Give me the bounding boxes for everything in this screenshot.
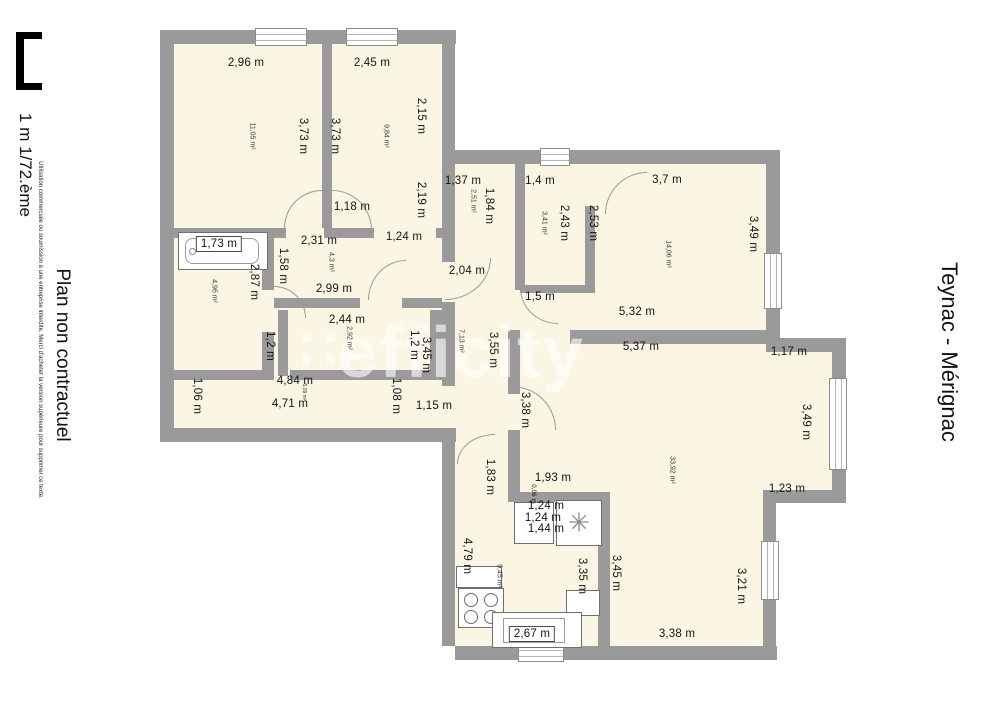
dimension-label: 3,49 m bbox=[747, 216, 759, 252]
window bbox=[761, 541, 779, 600]
window-pane-line bbox=[835, 379, 836, 469]
dimension-label: 2,04 m bbox=[449, 265, 485, 277]
wall bbox=[455, 646, 518, 660]
dimension-label: 3,49 m bbox=[800, 404, 812, 440]
dimension-label: 1,5 m bbox=[525, 291, 555, 303]
window-pane-line bbox=[767, 542, 768, 599]
window-pane-line bbox=[256, 34, 306, 35]
scale-bar-icon bbox=[16, 32, 24, 90]
dimension-label: 2,67 m bbox=[509, 626, 555, 642]
stove-burner bbox=[484, 593, 498, 607]
window-pane-line bbox=[519, 650, 563, 651]
dimension-label: 1,15 m bbox=[416, 400, 452, 412]
scale-bar-icon bbox=[16, 32, 42, 39]
dimension-label: 2,87 m bbox=[248, 264, 260, 300]
window bbox=[829, 378, 847, 470]
dimension-label: 1,93 m bbox=[535, 472, 571, 484]
window bbox=[255, 28, 307, 46]
wall bbox=[763, 503, 776, 543]
plan-title: Teynac - Mérignac bbox=[936, 262, 962, 442]
window-pane-line bbox=[776, 254, 777, 308]
dimension-label: 4,84 m bbox=[277, 375, 313, 387]
dimension-label: 1,23 m bbox=[769, 483, 805, 495]
window-pane-line bbox=[541, 160, 569, 161]
room-area-label: 9,84 m² bbox=[383, 124, 390, 148]
stove-burner bbox=[464, 610, 478, 624]
dimension-label: 1,73 m bbox=[196, 236, 242, 252]
plan-disclaimer: Plan non contractuel bbox=[51, 268, 73, 441]
dimension-label: 2,53 m bbox=[587, 205, 599, 241]
dimension-label: 1,2 m bbox=[264, 331, 276, 361]
wall bbox=[160, 428, 456, 442]
dimension-label: 3,73 m bbox=[329, 118, 341, 154]
room-area-label: 4,96 m² bbox=[211, 279, 218, 303]
room-area-label: 5,09 m² bbox=[301, 384, 307, 401]
wall bbox=[515, 164, 525, 290]
room-area-label: 7,13 m² bbox=[458, 329, 465, 353]
room-area-label: 4,3 m² bbox=[328, 252, 335, 272]
dimension-label: 3,21 m bbox=[735, 568, 747, 604]
dimension-label: 3,38 m bbox=[519, 392, 531, 428]
dimension-label: 1,17 m bbox=[771, 346, 807, 358]
dimension-label: 1,24 m bbox=[528, 500, 564, 512]
dimension-label: 1,84 m bbox=[483, 188, 495, 224]
room-area-label: 3,41 m² bbox=[541, 211, 548, 235]
room-area-label: 2,92 m² bbox=[346, 326, 353, 350]
dimension-label: 2,44 m bbox=[329, 314, 365, 326]
wall bbox=[763, 598, 776, 648]
dimension-label: 1,83 m bbox=[484, 459, 496, 495]
dimension-label: 5,32 m bbox=[619, 306, 655, 318]
dimension-label: 5,37 m bbox=[623, 341, 659, 353]
wall bbox=[174, 370, 274, 380]
dimension-label: 3,73 m bbox=[297, 118, 309, 154]
dimension-label: 1,4 m bbox=[525, 175, 555, 187]
dimension-label: 3,7 m bbox=[652, 174, 682, 186]
dimension-label: 1,37 m bbox=[445, 175, 481, 187]
freezer-icon: ✳ bbox=[568, 508, 590, 539]
wall bbox=[455, 150, 780, 164]
room-area-label: 33,92 m² bbox=[669, 456, 676, 484]
room-area-label: 2,51 m² bbox=[470, 189, 477, 213]
dimension-label: 2,15 m bbox=[415, 98, 427, 134]
dimension-label: 1,24 m bbox=[386, 231, 422, 243]
dimension-label: 3,55 m bbox=[487, 332, 499, 368]
room-area-label: 14,06 m² bbox=[665, 240, 672, 268]
wall bbox=[160, 30, 174, 442]
scale-bar-icon bbox=[16, 83, 42, 90]
wall bbox=[508, 430, 520, 492]
dimension-label: 3,38 m bbox=[659, 628, 695, 640]
window-pane-line bbox=[519, 656, 563, 657]
dimension-label: 2,99 m bbox=[316, 283, 352, 295]
wall bbox=[442, 30, 455, 172]
stove-burner bbox=[464, 593, 478, 607]
dimension-label: 3,35 m bbox=[576, 558, 588, 594]
dimension-label: 1,2 m bbox=[408, 330, 420, 360]
dimension-label: 4,79 m bbox=[461, 538, 473, 574]
window bbox=[540, 148, 570, 166]
window-pane-line bbox=[770, 254, 771, 308]
window bbox=[346, 28, 398, 46]
dimension-label: 3,45 m bbox=[420, 337, 432, 373]
wall bbox=[442, 430, 455, 646]
wall bbox=[402, 298, 442, 308]
wall bbox=[160, 30, 456, 44]
wall bbox=[564, 646, 777, 660]
dimension-label: 1,18 m bbox=[334, 201, 370, 213]
scale-label: 1 m 1/72.ème bbox=[15, 113, 35, 217]
dimension-label: 3,45 m bbox=[610, 555, 622, 591]
dimension-label: 2,96 m bbox=[228, 57, 264, 69]
dimension-label: 1,06 m bbox=[191, 378, 203, 414]
window bbox=[764, 253, 782, 309]
dimension-label: 1,58 m bbox=[277, 248, 289, 284]
dimension-label: 2,19 m bbox=[415, 182, 427, 218]
window-pane-line bbox=[541, 154, 569, 155]
dimension-label: 2,31 m bbox=[301, 235, 337, 247]
floor-plan-page: 1 m 1/72.ème Utilisation commerciale ou … bbox=[0, 0, 1000, 708]
window-pane-line bbox=[773, 542, 774, 599]
wall bbox=[570, 330, 770, 344]
wall bbox=[278, 310, 288, 376]
window-pane-line bbox=[347, 40, 397, 41]
dimension-label: 2,45 m bbox=[354, 57, 390, 69]
room-area-label: 11,05 m² bbox=[249, 122, 256, 149]
dimension-label: 2,43 m bbox=[558, 205, 570, 241]
license-fine-print: Utilisation commerciale ou soumission à … bbox=[37, 161, 43, 499]
window-pane-line bbox=[841, 379, 842, 469]
watermark-logo-icon: ∷ bbox=[300, 317, 331, 382]
dimension-label: 1,08 m bbox=[390, 378, 402, 414]
room-area-label: 9,45 m² bbox=[496, 564, 503, 588]
window-pane-line bbox=[256, 40, 306, 41]
dimension-label: 1,44 m bbox=[528, 523, 564, 535]
wall bbox=[766, 150, 780, 255]
window-pane-line bbox=[347, 34, 397, 35]
